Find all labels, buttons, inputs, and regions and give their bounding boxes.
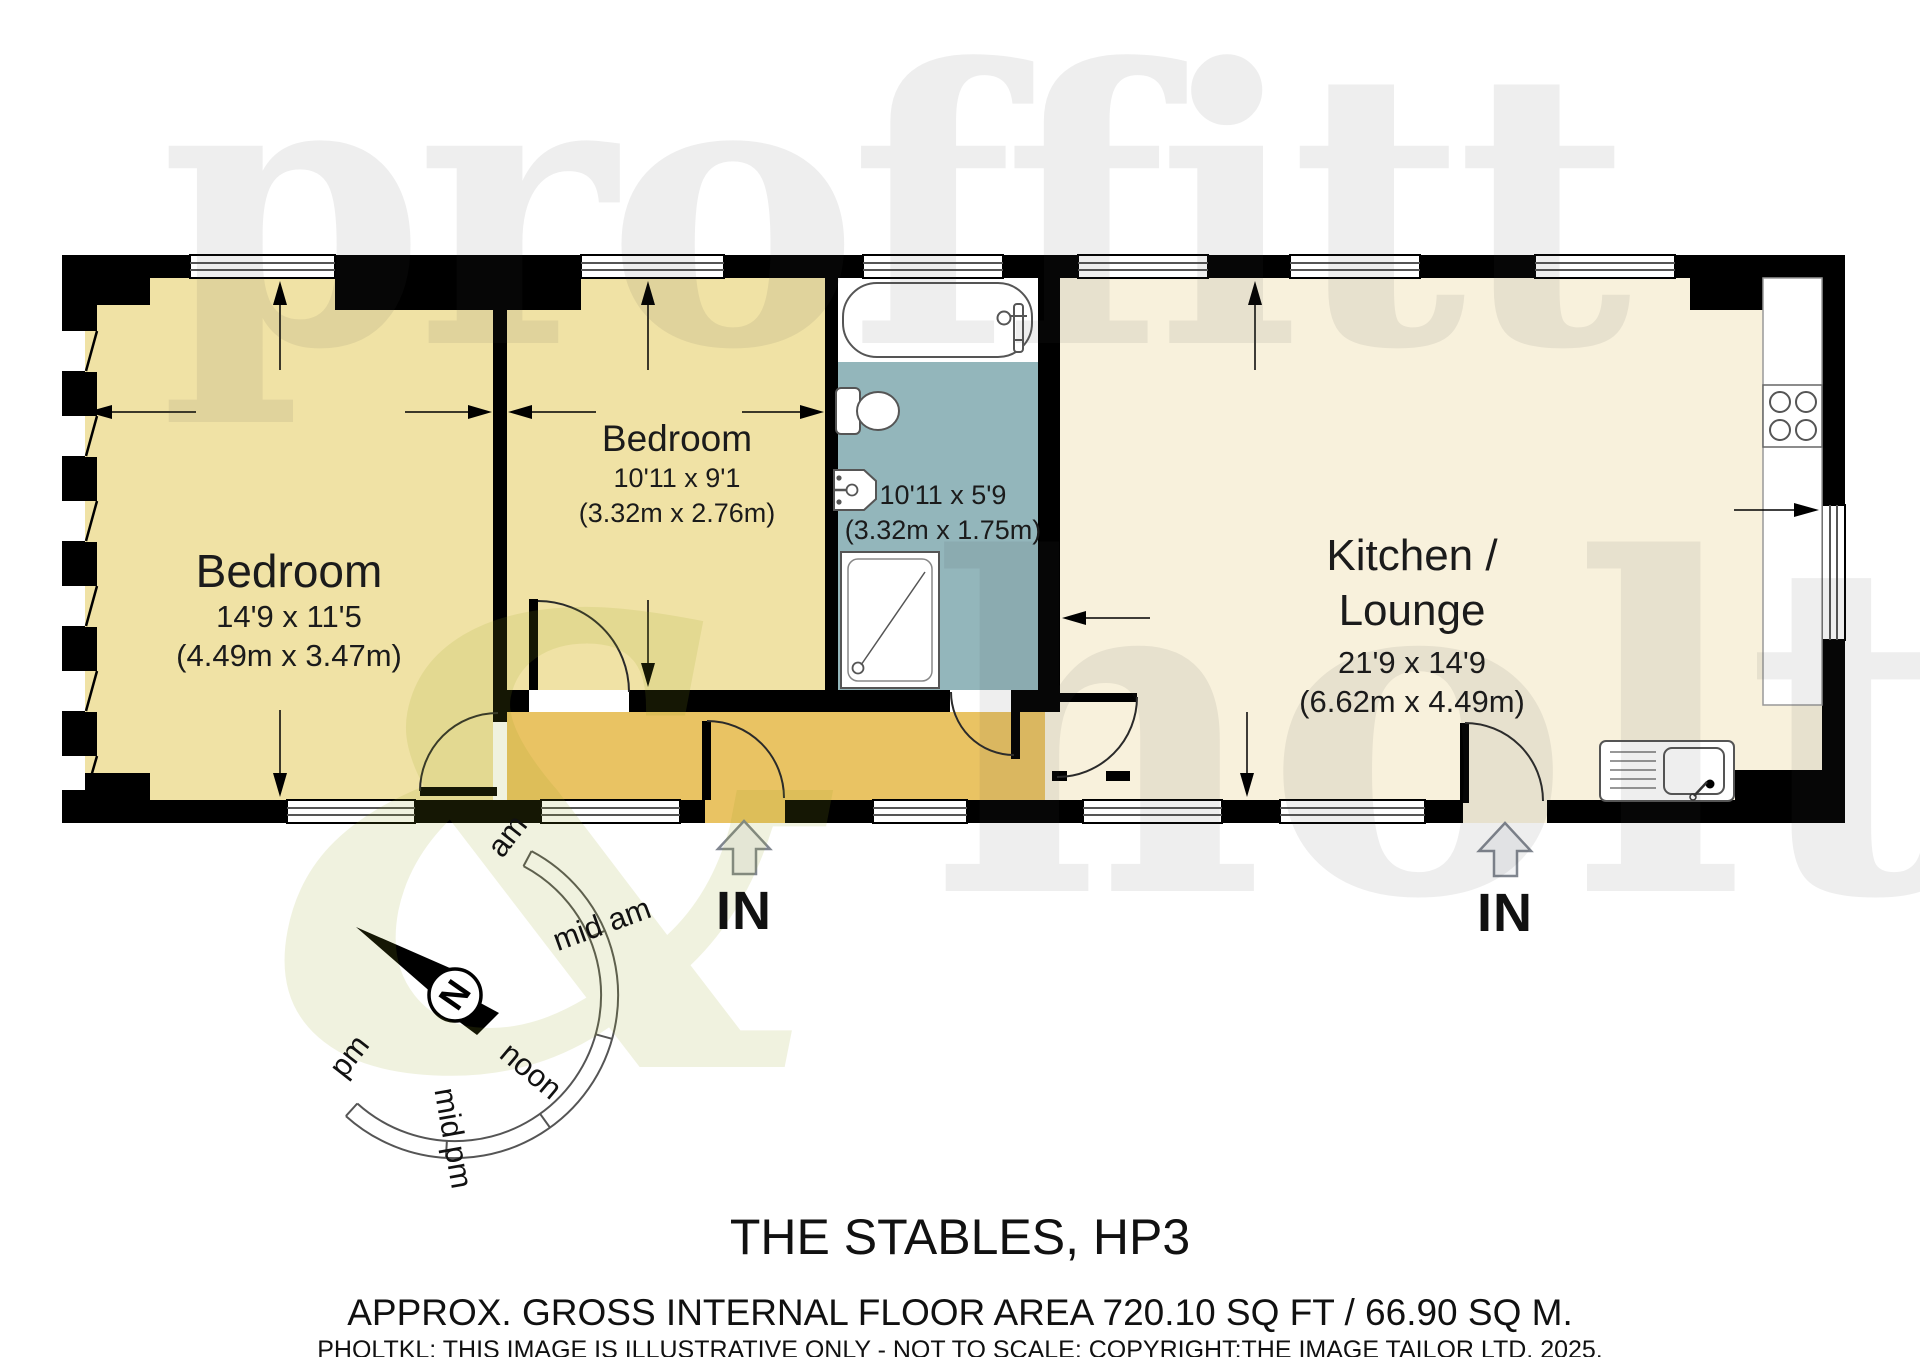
window-bottom-1 <box>287 800 415 823</box>
toilet-icon <box>836 388 899 434</box>
bedroom2-size-metric: (3.32m x 2.76m) <box>579 496 776 531</box>
wall-stub-hall-door-b <box>1106 771 1130 781</box>
kitchen-name-line2: Lounge <box>1299 583 1525 638</box>
room-label-bedroom2: Bedroom 10'11 x 9'1 (3.32m x 2.76m) <box>579 418 776 531</box>
bathroom-size-imperial: 10'11 x 5'9 <box>845 478 1042 513</box>
window-bottom-2 <box>541 800 680 823</box>
wall-bath-hall-a <box>838 690 950 712</box>
hallway-floor <box>507 712 1045 800</box>
bedroom1-name: Bedroom <box>176 545 402 598</box>
bedroom1-size-metric: (4.49m x 3.47m) <box>176 637 402 676</box>
left-entrance-arrow-icon <box>718 821 770 874</box>
right-entrance-label: IN <box>1477 882 1533 944</box>
room-label-kitchen-lounge: Kitchen / Lounge 21'9 x 14'9 (6.62m x 4.… <box>1299 528 1525 722</box>
wall-pier-top <box>335 255 581 310</box>
wall-bath-hall-b <box>1018 690 1038 712</box>
room-label-bedroom1: Bedroom 14'9 x 11'5 (4.49m x 3.47m) <box>176 545 402 675</box>
threshold-left-entrance <box>705 800 785 823</box>
bedroom2-name: Bedroom <box>579 418 776 461</box>
window-top-3 <box>863 255 1003 278</box>
wall-bed1-bed2 <box>493 278 507 722</box>
window-bottom-4 <box>1083 800 1222 823</box>
wall-bed2-hall-b <box>629 690 825 712</box>
sink-icon <box>1600 741 1734 801</box>
wall-corner-tl <box>62 255 150 305</box>
right-entrance-arrow-icon <box>1479 823 1531 876</box>
plan-title: THE STABLES, HP3 <box>0 1208 1920 1266</box>
wall-corner-br <box>1735 770 1845 823</box>
threshold-right-entrance <box>1463 800 1547 823</box>
compass: N <box>346 851 618 1158</box>
bathtub-icon <box>843 283 1032 357</box>
kitchen-size-metric: (6.62m x 4.49m) <box>1299 683 1525 722</box>
floor-plan-drawing: N <box>0 0 1920 1357</box>
bedroom2-size-imperial: 10'11 x 9'1 <box>579 461 776 496</box>
window-top-1 <box>190 255 335 278</box>
window-top-2 <box>581 255 724 278</box>
floor-plan-page: N proffitt & holt Bedroom 14'9 x 11'5 (4… <box>0 0 1920 1357</box>
kitchen-name-line1: Kitchen / <box>1299 528 1525 583</box>
bedroom1-floor <box>85 278 493 800</box>
window-top-6 <box>1535 255 1675 278</box>
window-bottom-3 <box>873 800 967 823</box>
kitchen-size-imperial: 21'9 x 14'9 <box>1299 644 1525 683</box>
bedroom1-size-imperial: 14'9 x 11'5 <box>176 598 402 637</box>
room-label-bathroom: 10'11 x 5'9 (3.32m x 1.75m) <box>845 478 1042 548</box>
window-right <box>1822 505 1845 640</box>
floor-area-text: APPROX. GROSS INTERNAL FLOOR AREA 720.10… <box>0 1292 1920 1334</box>
shower-icon <box>841 552 939 688</box>
wall-bath-kitchen <box>1038 278 1060 712</box>
entrance-arrows <box>718 821 1531 876</box>
window-top-4 <box>1078 255 1208 278</box>
left-entrance-label: IN <box>716 880 772 942</box>
kitchen-counter <box>1763 278 1822 705</box>
bathroom-size-metric: (3.32m x 1.75m) <box>845 513 1042 548</box>
hob-icon <box>1763 385 1822 447</box>
window-top-5 <box>1290 255 1420 278</box>
disclaimer-text: PHOLTKL: THIS IMAGE IS ILLUSTRATIVE ONLY… <box>0 1336 1920 1357</box>
wall-bed2-hall-a <box>507 690 529 712</box>
window-bottom-5 <box>1280 800 1425 823</box>
